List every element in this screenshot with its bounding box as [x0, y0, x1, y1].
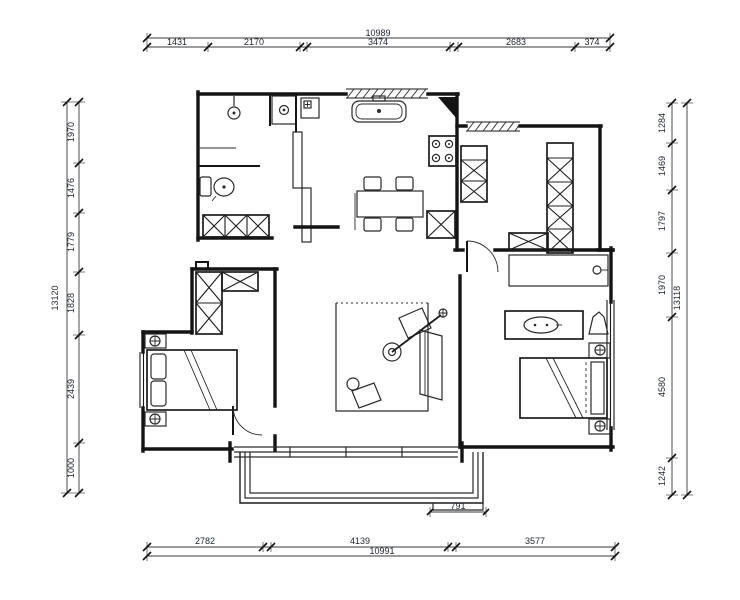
- kitchen-window: [346, 89, 428, 98]
- dim-right-seg1: 1284: [657, 113, 667, 133]
- balcony: 791: [230, 443, 489, 517]
- kitchen: [352, 96, 457, 238]
- desk: [509, 255, 608, 286]
- wardrobe-left: [196, 272, 258, 334]
- dim-top-seg4: 2683: [506, 37, 526, 47]
- tv-panel: [420, 330, 442, 400]
- dim-left-seg3: 1779: [66, 232, 76, 252]
- dim-left-seg5: 2439: [66, 379, 76, 399]
- table-lamp: [589, 312, 608, 334]
- entry-corridor: [461, 143, 573, 272]
- dim-left-seg1: 1970: [66, 122, 76, 142]
- nightstand: [145, 334, 166, 348]
- dimension-top: 10989 1431 2170 3474 2683 374: [143, 28, 614, 52]
- dim-right-seg2: 1469: [657, 156, 667, 176]
- shoe-cabinet: [509, 233, 548, 250]
- right-bedroom-window: [607, 300, 614, 430]
- living-room: [336, 303, 447, 411]
- dim-bottom-seg3: 3577: [525, 536, 545, 546]
- kitchen-sink: [352, 96, 406, 122]
- dim-bottom-seg2: 4139: [350, 536, 370, 546]
- dim-left-seg4: 1828: [66, 293, 76, 313]
- dim-top-seg1: 1431: [167, 37, 187, 47]
- dresser: [505, 311, 583, 339]
- dimension-left: 13120 1970 1476 1779 1828 2439 1000: [50, 98, 85, 497]
- entry-window: [466, 122, 520, 131]
- sliding-door: [293, 94, 338, 242]
- dimension-bottom: 2782 4139 3577 10991: [143, 536, 619, 561]
- closet-west: [461, 146, 487, 202]
- dim-right-seg3: 1797: [657, 211, 667, 231]
- bedroom-left: [145, 272, 262, 435]
- fridge: [427, 211, 455, 238]
- dim-right-total: 13118: [672, 286, 682, 310]
- dim-left-total: 13120: [50, 285, 60, 310]
- rug: [336, 303, 428, 411]
- dim-bottom-total: 10991: [369, 546, 394, 556]
- floor-plan-canvas: 10989 1431 2170 3474 2683 374 2782 4139 …: [0, 0, 740, 600]
- dim-top-seg3: 3474: [368, 37, 388, 47]
- entry-door: [467, 241, 498, 272]
- dining-table: [355, 177, 423, 231]
- floor-mat: [347, 378, 381, 408]
- bed-right: [520, 358, 607, 418]
- armchair: [399, 308, 431, 338]
- stove: [429, 136, 456, 166]
- corner-cabinet: [438, 97, 457, 119]
- closet-east: [547, 143, 573, 253]
- bed-left: [147, 350, 237, 410]
- dimension-right: 1284 1469 1797 1970 4580 1242 13118: [657, 99, 693, 499]
- balcony-sliding-door: [230, 443, 462, 461]
- left-bedroom-window: [140, 352, 147, 408]
- dim-top-seg2: 2170: [244, 37, 264, 47]
- shower-icon: [228, 96, 240, 119]
- floor-plan-document: 10989 1431 2170 3474 2683 374 2782 4139 …: [0, 0, 740, 600]
- dim-left-seg6: 1000: [66, 458, 76, 478]
- dim-right-seg4: 1970: [657, 275, 667, 295]
- dim-balcony-step: 791: [450, 501, 465, 511]
- washing-machine: [270, 94, 296, 126]
- bathroom-cabinet: [203, 215, 269, 237]
- balcony-railing: [240, 452, 483, 510]
- nightstand: [145, 412, 166, 426]
- dim-right-seg6: 1242: [657, 466, 667, 486]
- toilet: [200, 177, 234, 201]
- windows: [140, 89, 614, 430]
- dim-bottom-seg1: 2782: [195, 536, 215, 546]
- dim-right-seg5: 4580: [657, 377, 667, 397]
- utility-fixture: [301, 98, 319, 118]
- bedroom-right: [505, 255, 610, 434]
- dim-top-seg5: 374: [584, 37, 599, 47]
- dim-left-seg2: 1476: [66, 178, 76, 198]
- bathroom: [198, 94, 338, 242]
